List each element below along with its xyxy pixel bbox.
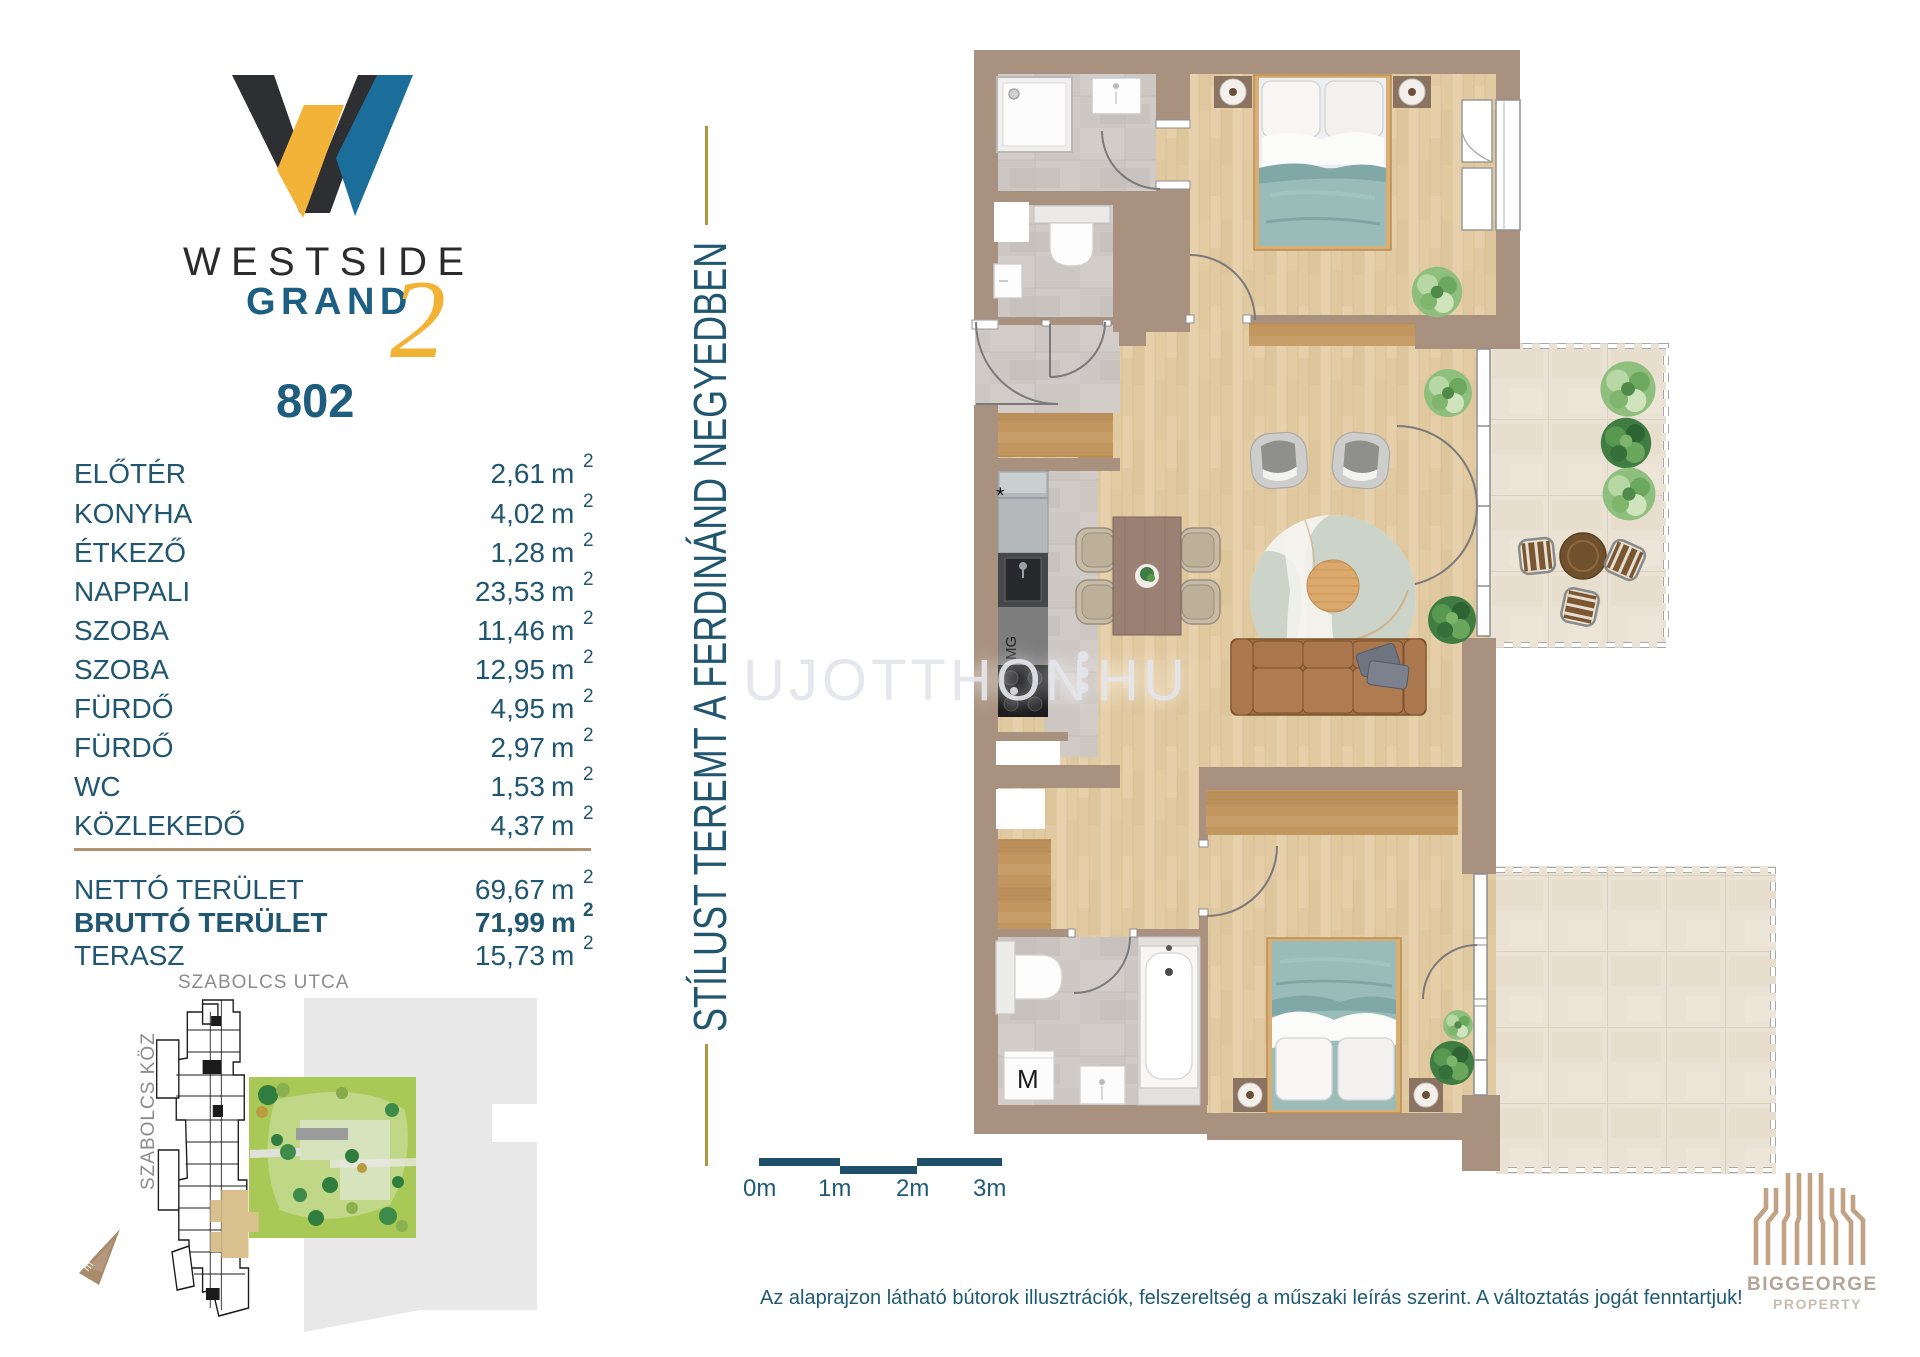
svg-text:M: M xyxy=(1017,1064,1039,1094)
svg-text:*: * xyxy=(996,483,1005,508)
svg-text:PROPERTY: PROPERTY xyxy=(1773,1296,1862,1312)
svg-text:BIGGEORGE: BIGGEORGE xyxy=(1747,1274,1878,1295)
